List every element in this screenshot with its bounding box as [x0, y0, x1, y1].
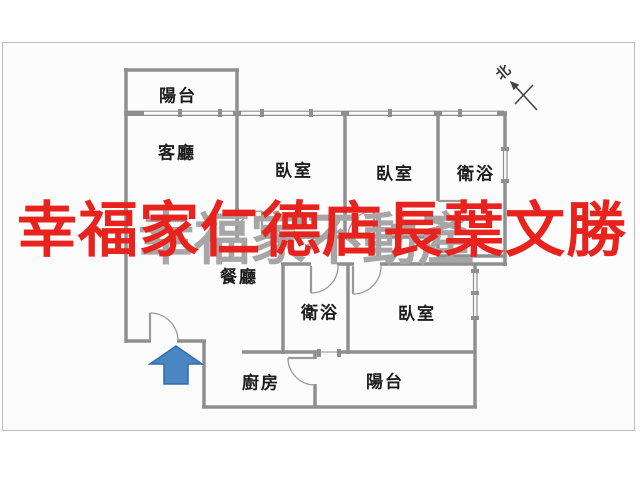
top-wall-windows: [124, 109, 507, 117]
window-post: [260, 109, 264, 117]
room-label-living-room: 客廳: [158, 139, 196, 164]
kitchen-door: [288, 358, 315, 385]
compass-icon: [510, 81, 537, 110]
window-post: [309, 109, 313, 117]
window-post: [458, 109, 462, 117]
room-label-bedroom-1: 臥室: [275, 157, 313, 182]
agent-watermark-red: 幸福家仁德店長葉文勝: [8, 200, 636, 262]
room-label-bedroom-2: 臥室: [376, 160, 414, 185]
room-label-balcony-bottom: 陽台: [366, 368, 404, 393]
balcony-slider: [317, 349, 341, 357]
room-label-balcony-top: 陽台: [159, 82, 197, 107]
entrance-arrow-icon: [150, 346, 202, 384]
room-label-bedroom-3: 臥室: [398, 300, 436, 325]
floorplan-page: { "panel": { "background": "#fcfcfc", "b…: [0, 0, 640, 480]
window-post: [218, 109, 222, 117]
room-label-bathroom-1: 衛浴: [457, 160, 495, 185]
window-post: [178, 109, 182, 117]
window-post: [388, 109, 392, 117]
entrance-door: [150, 313, 178, 341]
room-label-bathroom-2: 衛浴: [301, 299, 339, 324]
room-label-kitchen: 廚房: [242, 369, 280, 394]
